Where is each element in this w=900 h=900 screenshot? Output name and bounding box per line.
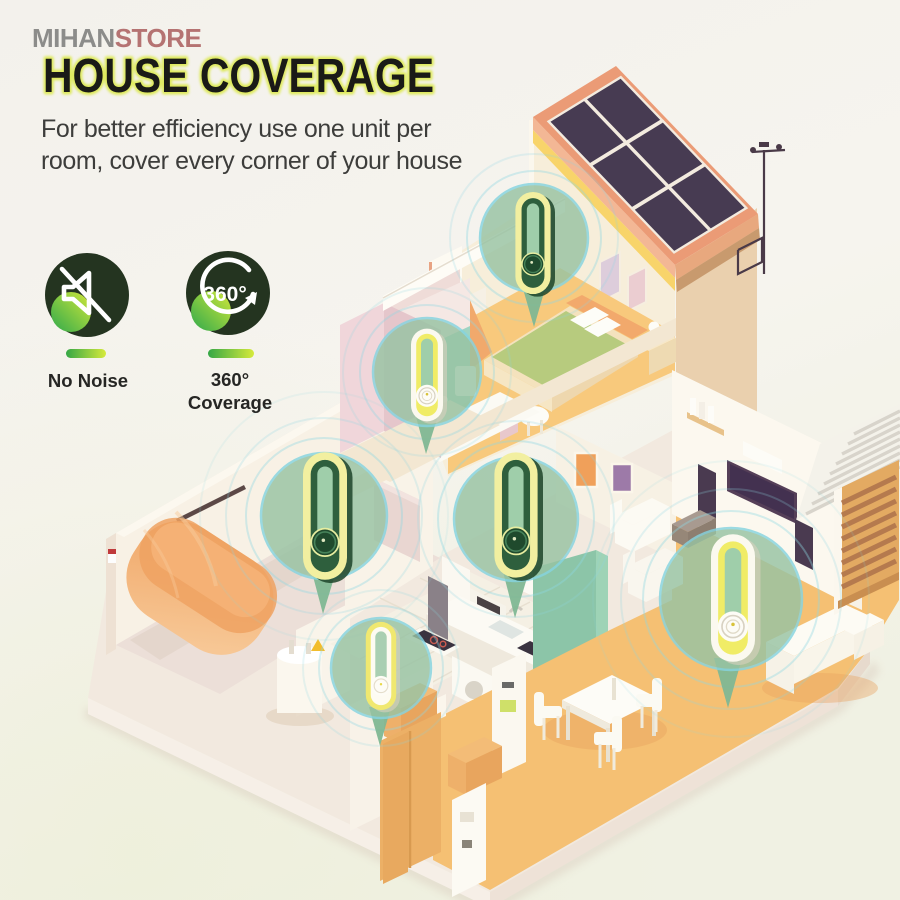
svg-text:360°: 360° <box>211 369 249 390</box>
svg-text:Coverage: Coverage <box>188 392 272 413</box>
svg-text:360°: 360° <box>203 283 246 306</box>
svg-text:MIHANSTORE: MIHANSTORE <box>32 23 201 53</box>
svg-text:For better efficiency use one: For better efficiency use one unit per <box>41 115 431 143</box>
svg-text:room, cover every corner of yo: room, cover every corner of your house <box>41 147 462 175</box>
svg-text:HOUSE COVERAGE: HOUSE COVERAGE <box>43 50 434 103</box>
svg-text:No Noise: No Noise <box>48 370 128 391</box>
